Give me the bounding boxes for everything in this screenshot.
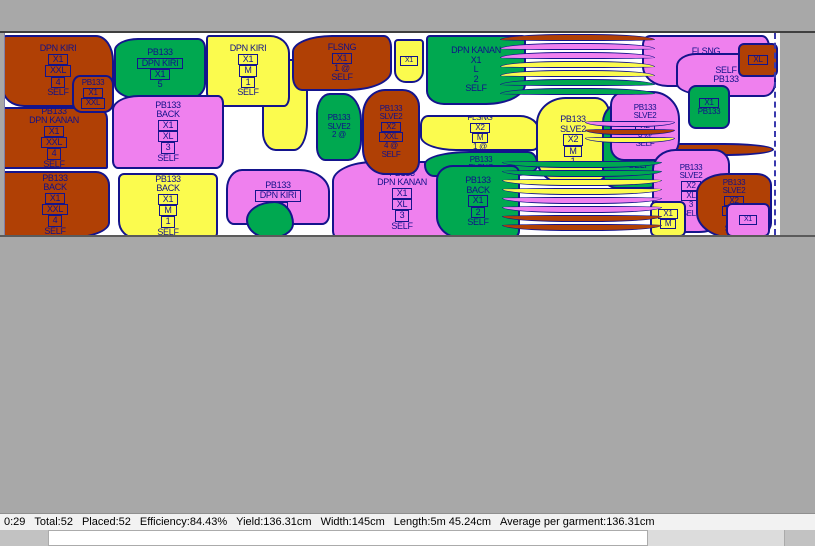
- status-yield: Yield:136.31cm: [236, 516, 311, 528]
- piece-label: X1: [158, 194, 178, 205]
- curved-band: [585, 129, 675, 135]
- arc-stack-bottom[interactable]: [502, 161, 662, 237]
- curved-band: [500, 52, 655, 59]
- curved-band: [500, 61, 655, 68]
- piece-label: DPN KIRI: [40, 44, 77, 53]
- piece-label: XXL: [81, 98, 105, 108]
- arc-stack-top[interactable]: [500, 34, 655, 98]
- piece-label: XXL: [41, 137, 67, 148]
- piece-label: SLVE2: [723, 187, 746, 195]
- piece-label: PB133: [713, 75, 739, 84]
- piece-label: SLVE2: [380, 113, 403, 121]
- curved-band: [500, 88, 655, 95]
- piece-label: DPN KIRI: [255, 190, 302, 201]
- scrollbar-left-track[interactable]: [0, 530, 48, 546]
- pattern-piece-back-xl-pink[interactable]: PB133BACKX1XL3SELF: [112, 95, 224, 169]
- arc-stack-right[interactable]: [585, 121, 675, 147]
- piece-label: X1: [44, 126, 64, 137]
- curved-band: [502, 224, 662, 231]
- status-bar: 0:29 Total:52 Placed:52 Efficiency:84.43…: [0, 513, 815, 530]
- piece-label: M: [660, 219, 676, 229]
- status-total: Total:52: [34, 516, 73, 528]
- piece-label: M: [159, 205, 176, 216]
- piece-label: XL: [392, 199, 412, 210]
- marker-end-line: [774, 33, 776, 235]
- pattern-piece-green-x1[interactable]: X1PB133: [688, 85, 730, 129]
- pattern-piece-back-xxl[interactable]: PB133BACKX1XXL4SELF: [0, 171, 110, 237]
- piece-label: SELF: [391, 222, 412, 231]
- curved-band: [502, 188, 662, 195]
- piece-label: SELF: [44, 227, 65, 236]
- piece-label: SLVE2: [634, 112, 657, 120]
- piece-label: X2: [470, 123, 489, 133]
- piece-label: 5: [158, 80, 163, 89]
- piece-label: M: [239, 65, 256, 76]
- status-efficiency: Efficiency:84.43%: [140, 516, 227, 528]
- piece-label: XL: [158, 131, 178, 142]
- piece-label: SELF: [465, 84, 486, 93]
- piece-label: XXL: [42, 204, 68, 215]
- piece-label: SELF: [237, 88, 258, 97]
- pattern-piece-dpn-kanan-xxl[interactable]: PB133DPN KANANX1XXL4SELF: [0, 107, 108, 169]
- curved-band: [502, 161, 662, 168]
- piece-label: BACK: [466, 186, 489, 195]
- piece-label: PB133: [82, 79, 105, 87]
- curved-band: [502, 170, 662, 177]
- empty-workspace: [0, 237, 815, 513]
- piece-label: X1: [238, 54, 258, 65]
- piece-label: X1: [739, 215, 757, 224]
- scrollbar-corner: [784, 530, 815, 546]
- canvas-right-margin: [780, 33, 815, 235]
- curved-band: [500, 34, 655, 41]
- pattern-piece-flsng-x1[interactable]: FLSNGX11 @SELF: [292, 35, 392, 91]
- pattern-piece-green-blob[interactable]: [246, 201, 294, 237]
- piece-label: FLSNG: [467, 115, 492, 123]
- canvas-left-edge: [0, 33, 5, 235]
- piece-label: X1: [45, 193, 65, 204]
- curved-band: [500, 70, 655, 77]
- status-placed: Placed:52: [82, 516, 131, 528]
- piece-label: SLVE2: [680, 172, 703, 180]
- scrollbar-thumb[interactable]: [48, 530, 648, 546]
- piece-label: SELF: [47, 88, 68, 97]
- piece-label: X1: [48, 54, 68, 65]
- pattern-piece-slve2-xxl-brown[interactable]: PB133SLVE2X2XXL4 @SELF: [362, 89, 420, 175]
- pattern-piece-tiny-yellow-top[interactable]: X1: [394, 39, 424, 83]
- piece-label: X1: [400, 56, 418, 65]
- pattern-piece-notch-pb133-xxl[interactable]: PB133X1XXL: [72, 75, 114, 113]
- pattern-piece-pb133-dpn-kiri[interactable]: PB133DPN KIRIX15: [114, 38, 206, 100]
- piece-label: DPN KIRI: [137, 58, 184, 69]
- piece-label: DPN KANAN: [29, 116, 79, 125]
- piece-label: SELF: [331, 73, 352, 82]
- piece-label: XXL: [45, 65, 71, 76]
- piece-label: FLSNG: [328, 43, 357, 52]
- pattern-piece-slve2-green-left[interactable]: PB133SLVE22 @: [316, 93, 362, 161]
- status-average: Average per garment:136.31cm: [500, 516, 655, 528]
- piece-label: SELF: [467, 218, 488, 227]
- piece-label: SELF: [43, 160, 64, 169]
- curved-band: [502, 215, 662, 222]
- piece-label: X1: [392, 188, 412, 199]
- pattern-piece-pink-small-br[interactable]: X1: [726, 203, 770, 237]
- piece-label: SELF: [157, 154, 178, 163]
- status-time: 0:29: [4, 516, 25, 528]
- piece-label: 1 @: [473, 143, 487, 151]
- pattern-piece-top-right-brown[interactable]: XL: [738, 43, 778, 77]
- piece-label: X1: [83, 88, 102, 98]
- piece-label: DPN KIRI: [230, 44, 267, 53]
- piece-label: SELF: [157, 228, 178, 237]
- curved-band: [500, 43, 655, 50]
- marker-canvas[interactable]: DPN KIRIX1XXL4SELFPB133DPN KANANX1XXL4SE…: [0, 31, 815, 237]
- piece-label: X1: [158, 120, 178, 131]
- pattern-piece-flsng-strip-yellow[interactable]: FLSNGX2M1 @: [420, 115, 540, 151]
- piece-label: SLVE2: [560, 125, 586, 134]
- piece-label: DPN KANAN: [377, 178, 427, 187]
- curved-band: [502, 206, 662, 213]
- piece-label: 2 @: [332, 131, 346, 139]
- curved-band: [585, 137, 675, 143]
- piece-label: XL: [748, 55, 767, 65]
- curved-band: [502, 179, 662, 186]
- curved-band: [500, 79, 655, 86]
- piece-label: BACK: [156, 184, 179, 193]
- piece-label: BACK: [43, 183, 66, 192]
- pattern-piece-back-m-yellow[interactable]: PB133BACKX1M1SELF: [118, 173, 218, 237]
- piece-label: PB133: [147, 48, 173, 57]
- piece-label: X2: [563, 134, 583, 145]
- horizontal-scrollbar[interactable]: [0, 530, 815, 546]
- curved-band: [502, 197, 662, 204]
- status-length: Length:5m 45.24cm: [394, 516, 491, 528]
- piece-label: PB133: [698, 108, 721, 116]
- piece-label: SELF: [382, 151, 401, 159]
- status-width: Width:145cm: [321, 516, 385, 528]
- piece-label: BACK: [156, 110, 179, 119]
- canvas-top-margin: [0, 0, 815, 31]
- piece-label: PB133: [265, 181, 291, 190]
- piece-label: X2: [381, 122, 400, 132]
- piece-label: X1: [468, 195, 488, 206]
- curved-band: [585, 121, 675, 127]
